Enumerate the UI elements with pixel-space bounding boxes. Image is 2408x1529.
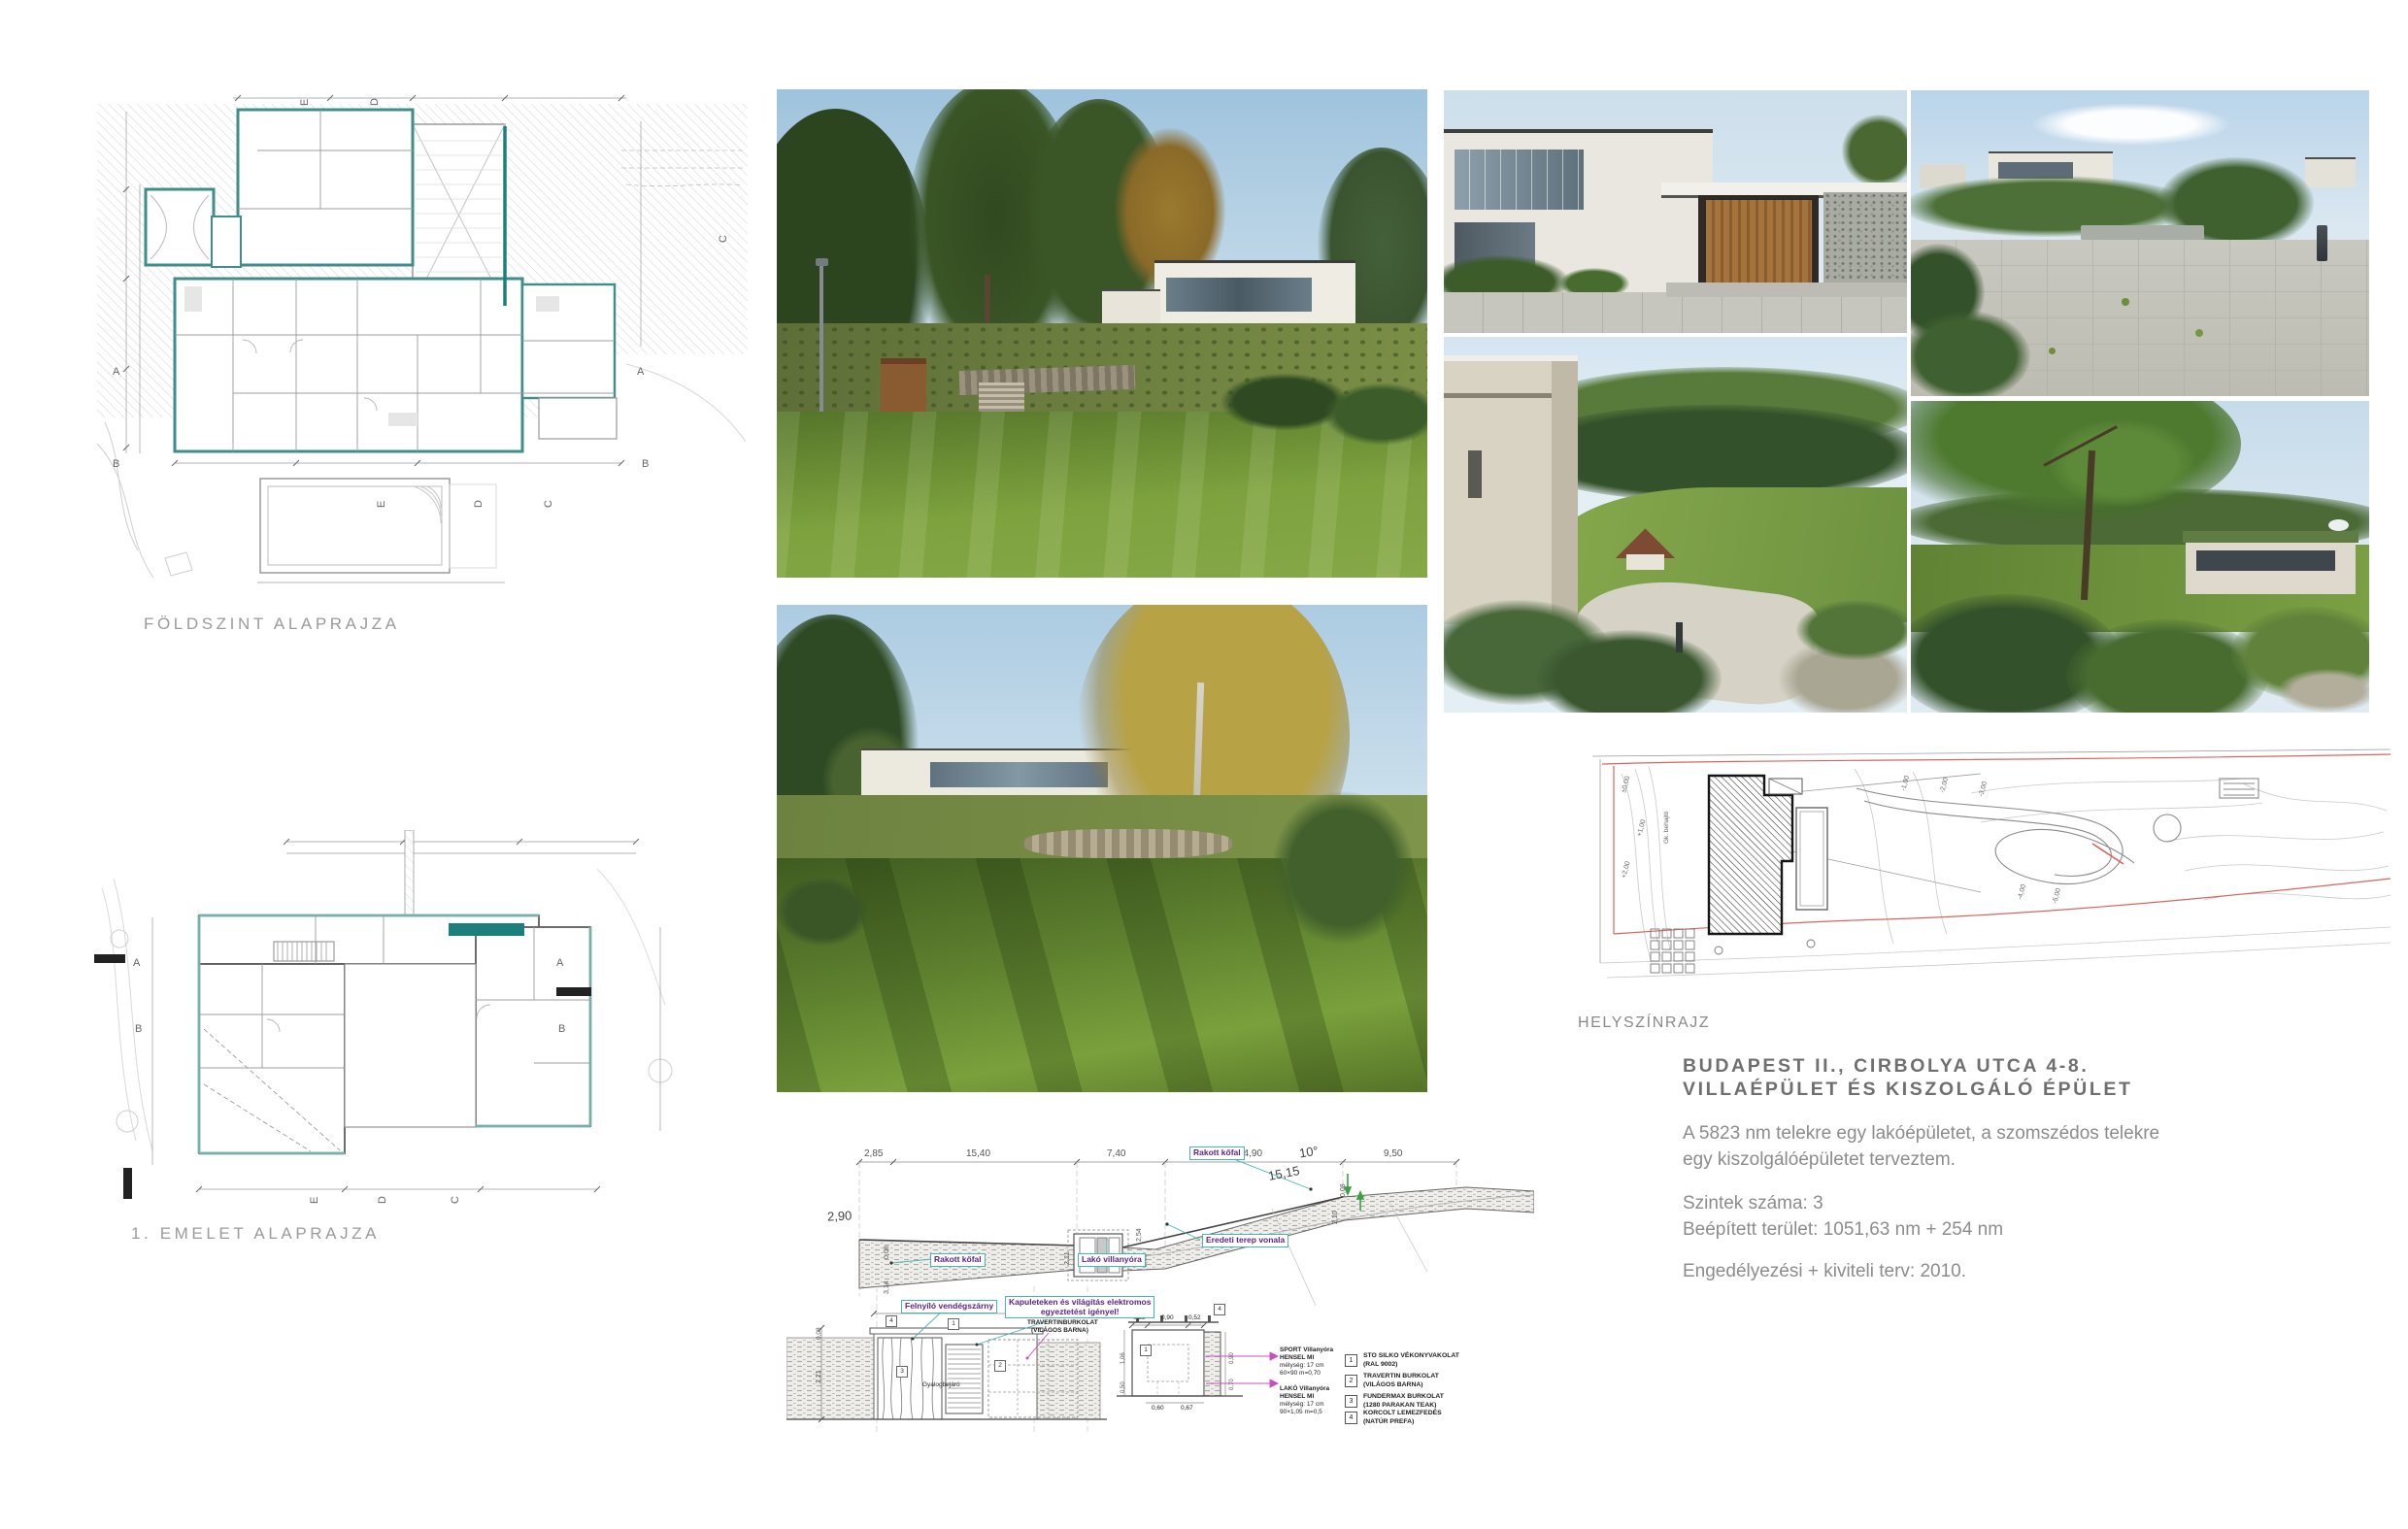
pillar-dim: 0,52 <box>1188 1314 1201 1322</box>
project-built-area: Beépített terület: 1051,63 nm + 254 nm <box>1683 1219 2003 1241</box>
grid-letter: E <box>376 501 387 508</box>
first-floor-plan-linework: A A B B E D C <box>92 830 685 1209</box>
legend-number: 2 <box>1345 1375 1357 1387</box>
grid-letter: D <box>473 500 485 508</box>
grid-letter: A <box>556 957 564 969</box>
rock-garden <box>1024 829 1232 858</box>
grid-letter: B <box>642 458 649 470</box>
meter-lako-line2: HENSEL MI <box>1280 1393 1314 1401</box>
bollard <box>2317 225 2327 262</box>
walkway-label: Gyalogbejáró <box>922 1381 960 1389</box>
meter-sport-line2: HENSEL MI <box>1280 1354 1314 1362</box>
grid-letter: C <box>450 1196 461 1204</box>
tree <box>1842 115 1907 187</box>
legend-number: 4 <box>1345 1412 1357 1424</box>
garage-door <box>1706 200 1813 283</box>
material-tag-4: 4 <box>886 1315 897 1327</box>
site-level: -5,00 <box>2052 887 2062 904</box>
ground-floor-plan-drawing: A A B B E D C E D C <box>97 92 748 587</box>
section-dim: 9,50 <box>1384 1148 1402 1159</box>
meter-sport-line4: 60×90 m=0,70 <box>1280 1370 1321 1378</box>
section-vdim: 2,54 <box>1136 1228 1143 1242</box>
section-vdim: 0,08 <box>1340 1183 1347 1197</box>
cloud <box>2030 103 2232 146</box>
material-tag-1: 1 <box>948 1318 959 1330</box>
dome <box>2328 519 2349 531</box>
shrub <box>1796 600 1907 660</box>
site-driveway-label: Gk. behajtó <box>1663 811 1670 844</box>
legend-number: 3 <box>1345 1395 1357 1408</box>
grid-letter: B <box>558 1023 565 1035</box>
callout-residential-meter: Lakó villanyóra <box>1078 1253 1146 1267</box>
lamp-head <box>816 258 828 266</box>
site-level: -2,00 <box>1939 777 1950 793</box>
grid-letter: B <box>135 1023 142 1035</box>
site-level: -4,00 <box>2017 883 2027 900</box>
callout-gate-wing: Felnyíló vendégszárny <box>901 1300 997 1313</box>
site-plan-linework: ±0,00 +1,00 +2,00 -1,00 -2,00 -3,00 -4,0… <box>1563 735 2393 1016</box>
material-tag-2: 2 <box>994 1360 1006 1372</box>
first-floor-plan-label: 1. EMELET ALAPRAJZA <box>131 1224 380 1244</box>
meter-sport-line1: SPORT Villanyóra <box>1280 1346 1333 1354</box>
section-vdim: 2,10 <box>1332 1211 1339 1224</box>
legend-number: 1 <box>1345 1354 1357 1367</box>
legend-text: (NATÚR PREFA) <box>1363 1418 1414 1426</box>
ground-floor-plan-linework: A A B B E D C E D C <box>97 92 748 587</box>
section-linework <box>786 1141 1534 1476</box>
grid-letter: C <box>718 235 729 243</box>
photo-valley-view <box>1444 337 1907 713</box>
lawn-light <box>777 412 1427 578</box>
grid-letter: A <box>133 957 141 969</box>
green-roof <box>2183 531 2359 543</box>
project-description-line1: A 5823 nm telekre egy lakóépületet, a sz… <box>1683 1123 2159 1145</box>
glass-mullions <box>1455 150 1584 211</box>
fence-section-and-gate-elevation: 2,85 15,40 7,40 14,90 9,50 2,90 10° 15,1… <box>786 1141 1534 1476</box>
photo-villa-lawn-birch <box>777 605 1427 1092</box>
meter-sport-line3: mélység: 17 cm <box>1280 1362 1324 1370</box>
section-slope-angle: 10° <box>1298 1144 1320 1161</box>
travertin-note-line1: TRAVERTINBURKOLAT <box>1027 1319 1098 1327</box>
pillar-dim: 0,60 <box>1152 1405 1164 1413</box>
pillar-dim: 0,67 <box>1181 1405 1193 1413</box>
lamp-post <box>819 265 822 416</box>
section-vdim: 2,21 <box>1064 1251 1071 1265</box>
grid-letter: E <box>309 1197 320 1204</box>
legend-text: KORCOLT LEMEZFEDÉS <box>1363 1410 1442 1417</box>
window-band <box>2196 550 2335 571</box>
first-floor-plan-drawing: A A B B E D C <box>92 830 685 1209</box>
site-level: -3,00 <box>1978 781 1989 797</box>
project-description-line2: egy kiszolgálóépületet terveztem. <box>1683 1149 1956 1171</box>
weed <box>2122 298 2129 306</box>
meter-lako-line1: LAKÓ Villanyóra <box>1280 1385 1329 1393</box>
callout-gate-electric-line2: egyeztetést igényel! <box>1041 1307 1120 1316</box>
tree-canopy <box>2049 419 2195 507</box>
site-level: +2,00 <box>1621 860 1631 879</box>
material-tag-1: 1 <box>1140 1345 1152 1356</box>
shrub <box>1271 790 1414 947</box>
photo-villa-garage <box>1444 90 1907 333</box>
grid-letter: D <box>369 98 381 106</box>
grid-letter: A <box>113 366 120 378</box>
site-plan-label: HELYSZÍNRAJZ <box>1578 1014 1710 1032</box>
legend-text: (RAL 9002) <box>1363 1361 1397 1369</box>
ground-floor-plan-label: FÖLDSZINT ALAPRAJZA <box>144 615 400 634</box>
bollard <box>1676 622 1684 652</box>
legend-text: (VILÁGOS BARNA) <box>1363 1381 1423 1389</box>
travertin-note-line2: (VILÁGOS BARNA) <box>1031 1327 1088 1335</box>
callout-stone-wall: Rakott kőfal <box>930 1253 986 1267</box>
section-dim: 7,40 <box>1107 1148 1125 1159</box>
legend-text: TRAVERTIN BURKOLAT <box>1363 1373 1439 1380</box>
portfolio-page: A A B B E D C E D C FÖLDSZINT ALAPRAJZA <box>0 0 2408 1529</box>
grid-letter: B <box>113 458 119 470</box>
pillar-dim: 0,70 <box>1229 1379 1235 1390</box>
photo-driveway <box>1911 90 2369 396</box>
site-level: -1,00 <box>1900 775 1911 791</box>
project-title-line2: VILLAÉPÜLET ÉS KISZOLGÁLÓ ÉPÜLET <box>1683 1079 2132 1101</box>
stone-bench <box>2081 225 2204 241</box>
grid-letter: E <box>299 99 311 106</box>
window <box>1468 450 1482 498</box>
meter-lako-line4: 90×1,05 m=0,5 <box>1280 1409 1322 1416</box>
legend-text: FUNDERMAX BURKOLAT <box>1363 1393 1444 1401</box>
house <box>2186 541 2356 594</box>
legend-text: (1280 PARAKAN TEAK) <box>1363 1402 1436 1410</box>
pillar-dim: 0,90 <box>1229 1352 1235 1364</box>
shrub <box>777 878 868 946</box>
weed <box>2195 329 2203 337</box>
grid-letter: A <box>637 366 645 378</box>
callout-terrain-line: Eredeti terep vonala <box>1202 1234 1288 1247</box>
gate-vdim: 0,08 <box>816 1327 822 1340</box>
window-band <box>1166 278 1312 312</box>
site-level: +1,00 <box>1636 818 1647 837</box>
hut-wall <box>1626 554 1663 569</box>
photo-villa-garden-autumn <box>777 89 1427 578</box>
meter-lako-line3: mélység: 17 cm <box>1280 1401 1324 1409</box>
callout-gate-electric: Kapuleteken és világítás elektromosegyez… <box>1005 1296 1154 1318</box>
section-vdim: 0,08 <box>884 1246 890 1259</box>
project-title-line1: BUDAPEST II., CIRBOLYA UTCA 4-8. <box>1683 1055 2089 1078</box>
callout-gate-electric-line1: Kapuleteken és világítás elektromos <box>1009 1297 1151 1307</box>
pillar-dim: 1,06 <box>1120 1352 1126 1364</box>
pillar-dim: 0,50 <box>1120 1381 1126 1393</box>
wall-shadow <box>1552 361 1579 624</box>
project-permit-year: Engedélyezési + kiviteli terv: 2010. <box>1683 1261 1966 1282</box>
gate-vdim: 2,21 <box>816 1370 822 1383</box>
section-level: 2,90 <box>827 1208 853 1223</box>
material-tag-4: 4 <box>1214 1304 1225 1315</box>
site-level: ±0,00 <box>1621 776 1631 794</box>
rocks <box>2278 669 2369 713</box>
pillar-dim: 0,90 <box>1161 1314 1174 1322</box>
section-vdim: 3,14 <box>884 1280 890 1294</box>
building-wall <box>1444 355 1578 624</box>
section-dim: 2,85 <box>864 1148 883 1159</box>
legend-text: STO SILKO VÉKONYVAKOLAT <box>1363 1352 1459 1360</box>
pavement-joints <box>1444 292 1907 334</box>
grid-letter: C <box>543 500 554 508</box>
project-levels: Szintek száma: 3 <box>1683 1193 1823 1214</box>
site-plan-drawing: ±0,00 +1,00 +2,00 -1,00 -2,00 -3,00 -4,0… <box>1563 735 2393 1016</box>
photo-tree-house <box>1911 401 2369 713</box>
pavement-side <box>1666 283 1907 297</box>
grid-letter: D <box>377 1196 388 1204</box>
callout-stone-wall: Rakott kőfal <box>1189 1147 1245 1160</box>
teal-canopy-element <box>449 923 524 936</box>
section-dim: 15,40 <box>966 1148 990 1159</box>
material-tag-3: 3 <box>896 1366 908 1378</box>
distant-building <box>2305 157 2356 186</box>
